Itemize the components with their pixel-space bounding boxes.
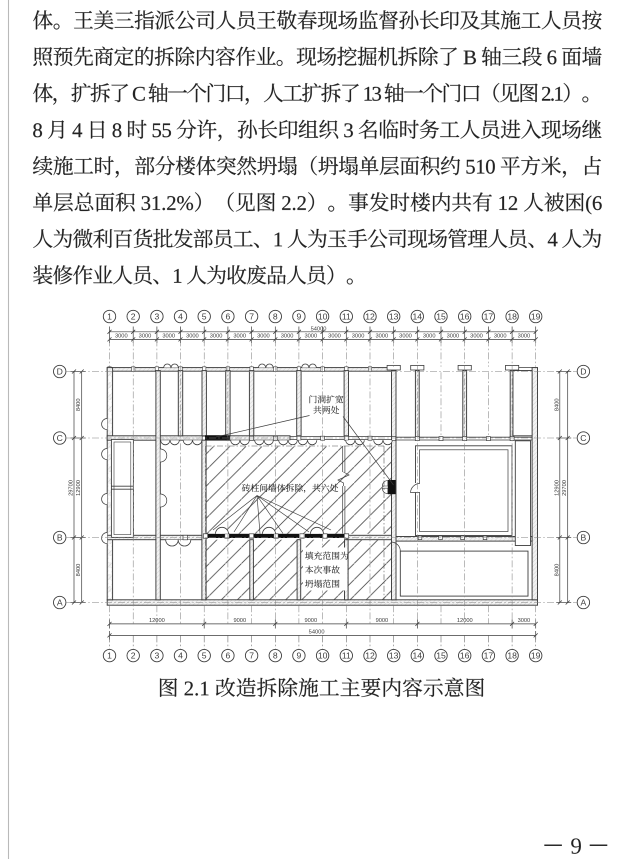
svg-text:3: 3 [155, 651, 160, 661]
svg-text:13: 13 [389, 651, 399, 661]
svg-text:11: 11 [342, 651, 351, 661]
svg-text:3000: 3000 [423, 333, 436, 339]
svg-text:3000: 3000 [375, 333, 388, 339]
svg-text:15: 15 [436, 651, 446, 661]
svg-text:3000: 3000 [399, 333, 412, 339]
svg-text:11: 11 [342, 312, 351, 322]
svg-text:3000: 3000 [447, 333, 460, 339]
svg-text:5: 5 [202, 651, 207, 661]
svg-text:12900: 12900 [76, 480, 82, 496]
svg-text:19: 19 [531, 651, 541, 661]
svg-text:18: 18 [507, 651, 517, 661]
svg-text:3000: 3000 [328, 333, 341, 339]
svg-text:6: 6 [226, 651, 231, 661]
svg-text:14: 14 [413, 312, 423, 322]
svg-text:1: 1 [107, 651, 112, 661]
svg-text:29700: 29700 [69, 480, 75, 496]
svg-text:3000: 3000 [494, 333, 507, 339]
svg-text:10: 10 [318, 312, 328, 322]
svg-text:3000: 3000 [257, 333, 270, 339]
svg-text:A: A [581, 598, 587, 608]
svg-text:3000: 3000 [281, 333, 294, 339]
svg-text:54000: 54000 [309, 630, 325, 636]
svg-text:7: 7 [249, 312, 254, 322]
svg-text:A: A [57, 598, 63, 608]
svg-text:8400: 8400 [554, 564, 560, 577]
svg-text:3000: 3000 [115, 333, 128, 339]
svg-text:B: B [57, 533, 63, 543]
svg-text:1: 1 [107, 312, 112, 322]
svg-text:C: C [580, 433, 586, 443]
svg-text:7: 7 [249, 651, 254, 661]
svg-text:D: D [580, 367, 586, 377]
svg-text:D: D [57, 367, 63, 377]
svg-text:18: 18 [507, 312, 517, 322]
svg-text:8400: 8400 [76, 564, 82, 577]
svg-text:9: 9 [297, 651, 302, 661]
svg-text:17: 17 [484, 312, 494, 322]
svg-text:9000: 9000 [376, 618, 389, 624]
svg-text:9: 9 [297, 312, 302, 322]
svg-text:3000: 3000 [139, 333, 152, 339]
svg-text:3: 3 [155, 312, 160, 322]
svg-text:9000: 9000 [304, 618, 317, 624]
svg-text:19: 19 [531, 312, 541, 322]
svg-text:8400: 8400 [554, 398, 560, 411]
svg-text:6: 6 [226, 312, 231, 322]
svg-text:12: 12 [365, 651, 375, 661]
svg-text:3000: 3000 [304, 333, 317, 339]
svg-text:2: 2 [131, 312, 136, 322]
svg-text:5: 5 [202, 312, 207, 322]
svg-text:12: 12 [365, 312, 375, 322]
svg-text:3000: 3000 [162, 333, 175, 339]
svg-text:13: 13 [389, 312, 399, 322]
svg-text:10: 10 [318, 651, 328, 661]
svg-text:4: 4 [178, 312, 183, 322]
svg-text:B: B [581, 533, 587, 543]
svg-text:3000: 3000 [518, 618, 531, 624]
svg-text:9000: 9000 [233, 618, 246, 624]
svg-text:3000: 3000 [210, 333, 223, 339]
svg-text:3000: 3000 [518, 333, 531, 339]
svg-text:16: 16 [460, 312, 470, 322]
svg-text:8: 8 [273, 651, 278, 661]
svg-text:8: 8 [273, 312, 278, 322]
svg-text:54000: 54000 [311, 326, 327, 332]
svg-text:2: 2 [131, 651, 136, 661]
svg-text:8400: 8400 [76, 398, 82, 411]
svg-text:14: 14 [413, 651, 423, 661]
svg-text:12900: 12900 [554, 480, 560, 496]
svg-text:16: 16 [460, 651, 470, 661]
svg-text:29700: 29700 [562, 480, 568, 496]
svg-text:3000: 3000 [233, 333, 246, 339]
svg-text:3000: 3000 [186, 333, 199, 339]
svg-text:3000: 3000 [352, 333, 365, 339]
svg-text:15: 15 [436, 312, 446, 322]
svg-text:4: 4 [178, 651, 183, 661]
svg-text:C: C [57, 433, 63, 443]
svg-text:17: 17 [484, 651, 494, 661]
svg-text:3000: 3000 [470, 333, 483, 339]
